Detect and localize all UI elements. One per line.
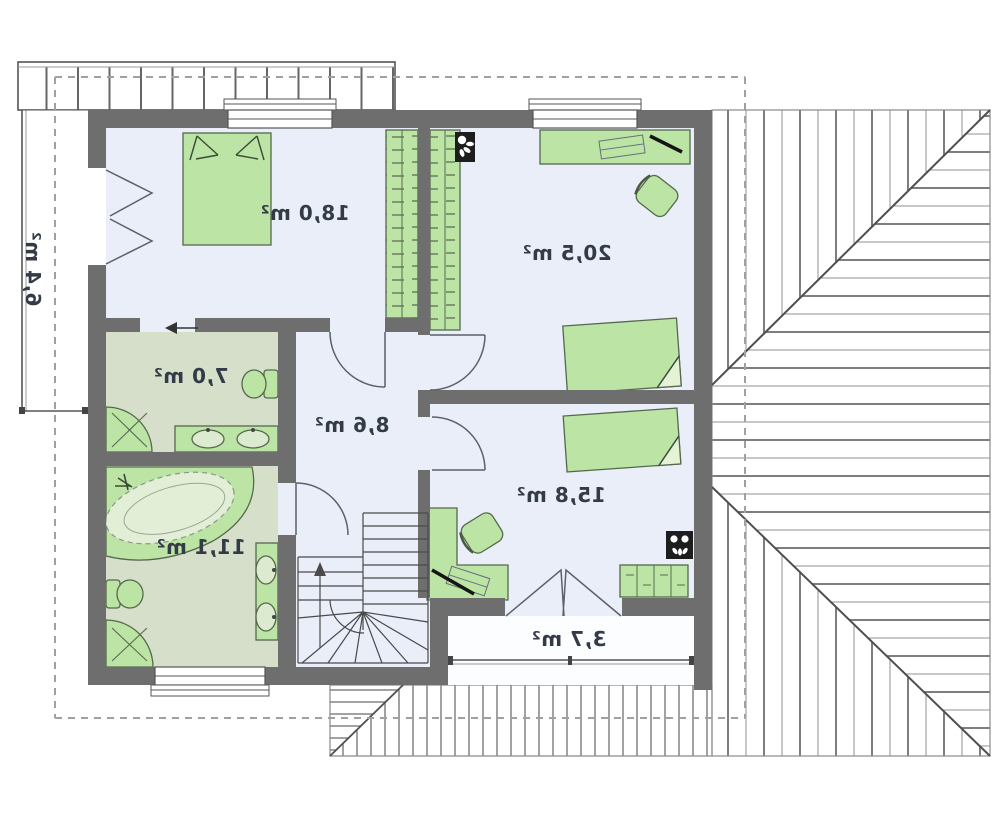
- roof-hatch-right: [712, 110, 990, 756]
- flue-icon: [666, 531, 693, 559]
- dresser-icon: [620, 565, 688, 597]
- double-bed-icon: [183, 133, 271, 245]
- floor-plan: 18,0 m² 20,5 m² 7,0 m² 8,6 m² 15,8 m² 11…: [0, 0, 1000, 821]
- flue-icon: [455, 132, 475, 162]
- roof-hatch-bottom: [330, 685, 712, 756]
- balcony-rear-floor: [448, 616, 694, 685]
- single-bed-icon: [563, 408, 681, 472]
- wardrobe-icon: [386, 130, 418, 318]
- washbasin-icon: [256, 543, 278, 640]
- floor-plan-drawing: [0, 0, 1000, 821]
- window-icon: [151, 667, 269, 696]
- balcony-side-railing: [19, 110, 88, 414]
- window-icon: [529, 99, 641, 128]
- desk-icon: [540, 130, 690, 164]
- single-bed-icon: [563, 318, 681, 394]
- balcony-top-railing: [18, 62, 395, 110]
- washbasin-icon: [175, 426, 278, 452]
- toilet-icon: [106, 580, 143, 608]
- window-icon: [224, 99, 336, 128]
- toilet-icon: [242, 370, 278, 398]
